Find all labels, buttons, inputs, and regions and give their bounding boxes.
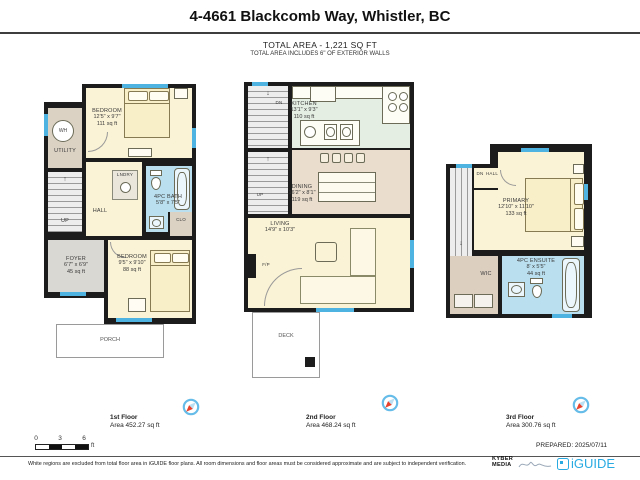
bed-icon [124, 88, 170, 138]
kitchen-sink-icon [340, 124, 353, 140]
floorplan-3rd-floor: ↓ DN HALL PRIMARY 12'10" x 11'10" 133 sq… [446, 144, 592, 318]
header-divider [0, 32, 640, 34]
page-title: 4-4661 Blackcomb Way, Whistler, BC [0, 8, 640, 25]
room-label-up: UP [61, 218, 69, 224]
compass-icon [381, 394, 399, 412]
room-label-dn: DN [276, 100, 283, 105]
coffee-table-icon [315, 242, 337, 262]
sink-icon [149, 216, 164, 229]
washer-icon [120, 182, 131, 193]
room-label-hall: HALL [93, 208, 108, 214]
caption-2nd-floor: 2nd FloorArea 468.24 sq ft [306, 414, 356, 431]
plan1-notch-topleft [44, 84, 82, 102]
sink-icon [508, 282, 525, 297]
pillow-icon [154, 253, 171, 263]
plan3-notch-topleft [446, 144, 490, 164]
cooktop-icon [304, 126, 316, 138]
room-label-kitchen: KITCHEN 13'1" x 9'3" 110 sq ft [290, 101, 317, 120]
side-table-icon [128, 298, 146, 312]
room-label-bedroom-b: BEDROOM 9'5" x 9'10" 88 sq ft [117, 254, 147, 273]
room-label-laundry: LNDRY [117, 172, 133, 177]
window [192, 128, 196, 148]
dining-table-icon [318, 172, 376, 202]
pillow-icon [574, 208, 584, 230]
porch: PORCH [56, 324, 164, 358]
stool-icon [344, 153, 353, 163]
floorplan-2nd-floor: ↓ DN ↑ UP KITCHEN 13'1" x 9'3" 110 sq ft… [244, 82, 414, 312]
window [116, 318, 152, 322]
sofa-icon [300, 276, 376, 304]
deck-feature-icon [305, 357, 315, 367]
window [252, 82, 268, 86]
room-label-dining: DINING 16'2" x 8'1" 119 sq ft [288, 184, 315, 203]
room-label-primary: PRIMARY 12'10" x 11'10" 133 sq ft [498, 198, 534, 217]
window [60, 292, 86, 296]
iguide-logo: iGUIDE [557, 456, 615, 471]
compass-icon [182, 398, 200, 416]
nightstand-icon [571, 236, 584, 247]
floorplan-1st-floor: WH BEDROOM 12'5" x 9'7" 111 sq ft UTILIT… [44, 84, 196, 324]
range-hood-icon [310, 86, 336, 102]
room-label-fireplace: F/P [262, 262, 270, 267]
total-area: TOTAL AREA - 1,221 SQ FT [0, 40, 640, 50]
stool-icon [356, 153, 365, 163]
room-label-hall: HALL [486, 171, 498, 176]
deck-label: DECK [253, 333, 319, 339]
caption-3rd-floor: 3rd FloorArea 300.76 sq ft [506, 414, 556, 431]
window [456, 164, 472, 168]
scale-tick-6: 6 [82, 435, 86, 442]
nightstand-icon [174, 88, 188, 99]
prepared-date: PREPARED: 2025/07/11 [536, 442, 607, 449]
deck: DECK [252, 312, 320, 378]
window [521, 148, 549, 152]
room-label-wic: WIC [480, 271, 491, 277]
room-label-bath: 4PC BATH 5'8" x 7'5" [154, 194, 182, 207]
room-label-ensuite: 4PC ENSUITE 8' x 5'5" 44 sq ft [517, 258, 555, 277]
window [316, 308, 354, 312]
bed-icon [150, 250, 190, 312]
caption-1st-floor: 1st FloorArea 452.27 sq ft [110, 414, 160, 431]
bathtub-icon [562, 258, 580, 312]
kitchen-sink-icon [324, 124, 337, 140]
stool-icon [320, 153, 329, 163]
porch-label: PORCH [57, 337, 163, 343]
dresser-icon [128, 148, 152, 157]
bench-icon [474, 294, 493, 308]
pillow-icon [172, 253, 189, 263]
room-label-closet: CLO [176, 217, 186, 222]
room-label-dn: DN [477, 171, 484, 176]
down-arrow-icon: ↓ [266, 90, 270, 97]
scale-tick-3: 3 [58, 435, 62, 442]
scale-unit: ft [91, 443, 94, 449]
down-arrow-icon: ↓ [459, 240, 463, 247]
room-label-living: LIVING 14'9" x 10'3" [265, 221, 295, 234]
window [552, 314, 572, 318]
window [584, 184, 588, 200]
room-label-foyer: FOYER 6'7" x 6'9" 45 sq ft [64, 256, 88, 275]
room-label-up: UP [257, 192, 264, 197]
signature-icon [517, 459, 553, 471]
up-arrow-icon: ↑ [63, 176, 67, 183]
toilet-icon [530, 278, 543, 298]
room-label-utility: UTILITY [54, 148, 76, 154]
bench-icon [454, 294, 473, 308]
total-area-note: TOTAL AREA INCLUDES 6" OF EXTERIOR WALLS [0, 51, 640, 57]
water-heater-icon: WH [52, 120, 74, 142]
window [122, 84, 168, 88]
room-closet [170, 212, 192, 236]
stool-icon [332, 153, 341, 163]
stove-burners-icon [386, 90, 410, 114]
pillow-icon [128, 91, 148, 101]
scale-bar [35, 444, 89, 450]
compass-icon [572, 396, 590, 414]
fireplace-icon [248, 254, 256, 278]
pillow-icon [149, 91, 169, 101]
up-arrow-icon: ↑ [266, 156, 270, 163]
room-label-bedroom-a: BEDROOM 12'5" x 9'7" 111 sq ft [92, 108, 122, 127]
toilet-icon [150, 170, 162, 190]
scale-tick-0: 0 [34, 435, 38, 442]
nightstand-icon [573, 164, 584, 174]
room-primary-ext [474, 190, 500, 250]
window [410, 240, 414, 268]
window [44, 114, 48, 136]
footer-divider [0, 456, 640, 457]
plan1-notch-bottomleft [44, 298, 104, 324]
iguide-icon [557, 458, 569, 470]
disclaimer-text: White regions are excluded from total fl… [28, 461, 466, 467]
pillow-icon [574, 183, 584, 205]
sofa-icon [350, 228, 376, 276]
kyber-media-logo: KYBER MEDIA [492, 457, 513, 469]
